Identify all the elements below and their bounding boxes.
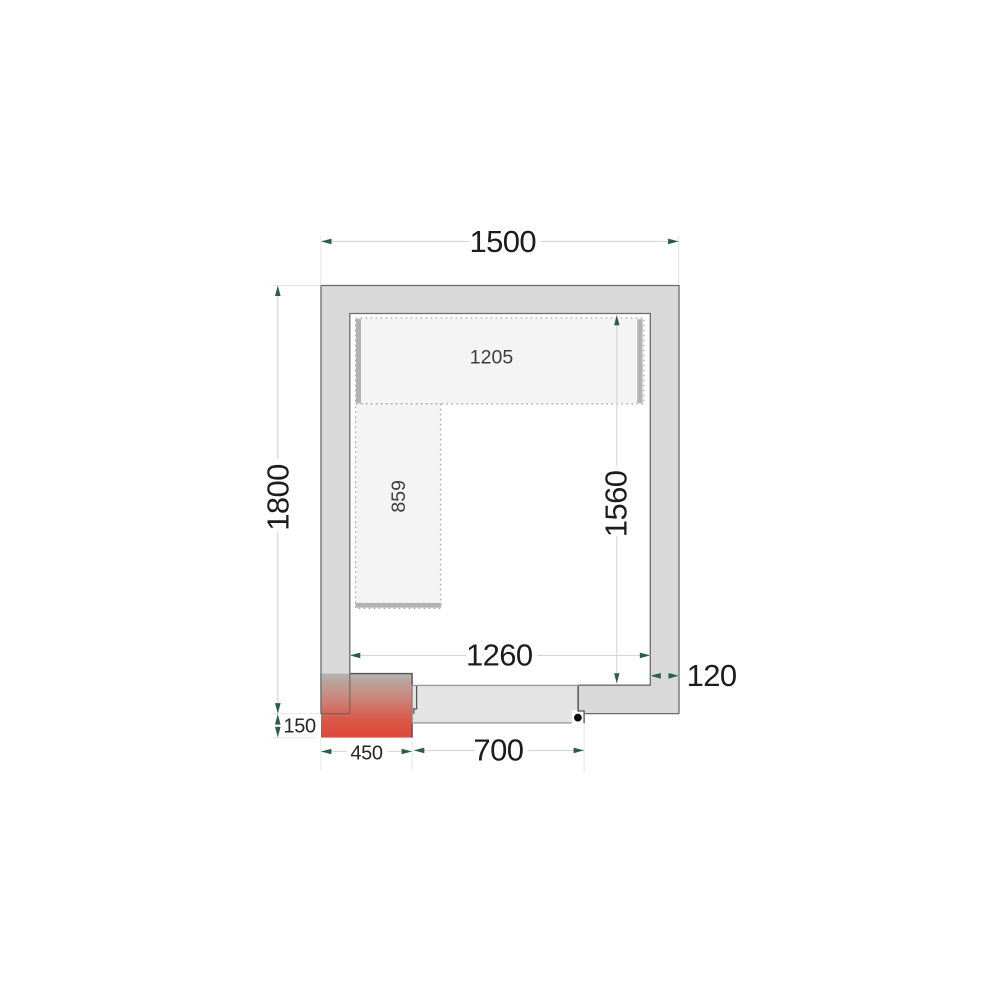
svg-text:1800: 1800 [261,464,296,531]
svg-text:859: 859 [388,480,410,513]
svg-text:120: 120 [687,658,737,693]
svg-text:150: 150 [284,715,316,737]
svg-text:1560: 1560 [599,470,634,537]
svg-text:1500: 1500 [470,224,537,259]
svg-text:1260: 1260 [466,638,533,673]
svg-text:450: 450 [350,742,382,764]
svg-text:700: 700 [473,733,523,768]
svg-text:1205: 1205 [470,347,514,369]
